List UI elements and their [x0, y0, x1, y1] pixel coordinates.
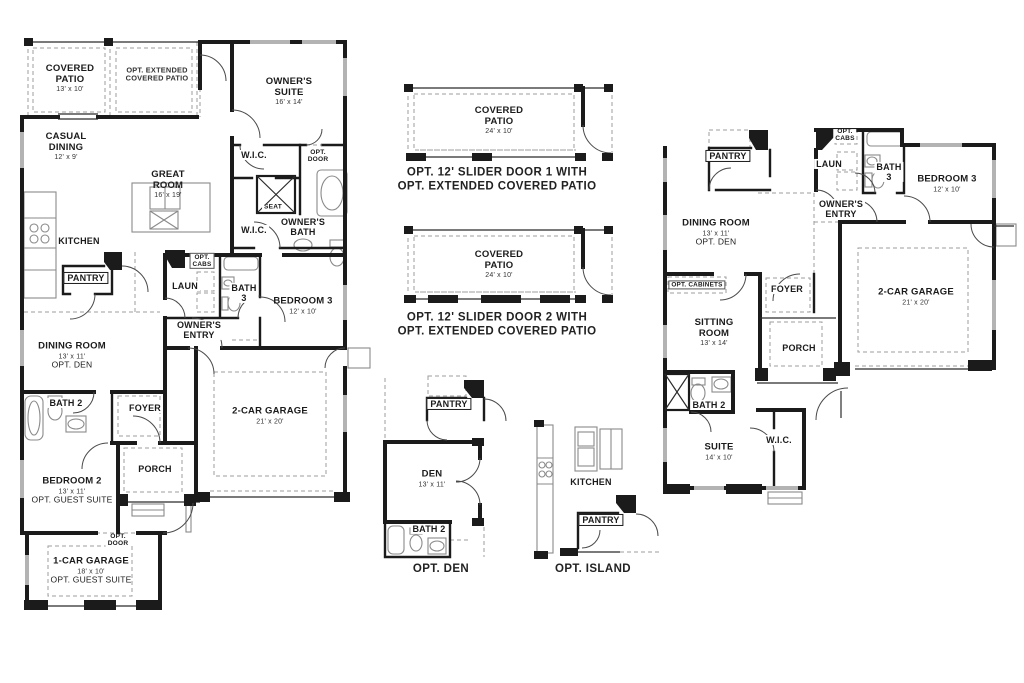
left-floor-plan [22, 38, 370, 610]
left-windows [22, 42, 345, 585]
right-door-swings [691, 168, 994, 452]
right-wall-posts [663, 130, 992, 494]
left-walls [22, 42, 345, 606]
right-fixtures [691, 132, 1016, 504]
opt-island-pantry-walls [560, 495, 660, 556]
opt-den-fixtures [388, 526, 446, 554]
floorplan-drawing [0, 0, 1024, 683]
opt-den-door-swings [427, 399, 506, 505]
left-wall-posts [24, 38, 350, 610]
right-windows [665, 145, 994, 488]
patio-option-2 [404, 226, 613, 303]
right-floor-plan [663, 130, 1016, 504]
patio-option-1 [404, 84, 613, 161]
right-walls [665, 130, 1014, 488]
opt-den-plan [385, 376, 506, 557]
opt-island-plan [534, 420, 660, 559]
floorplan-sheet: COVERED PATIO13' x 10'OPT. EXTENDED COVE… [0, 0, 1024, 683]
opt-island-appliances [575, 427, 622, 471]
opt-den-walls [385, 380, 484, 557]
right-optional-dashed [668, 130, 973, 366]
opt-island-counter [534, 420, 553, 559]
